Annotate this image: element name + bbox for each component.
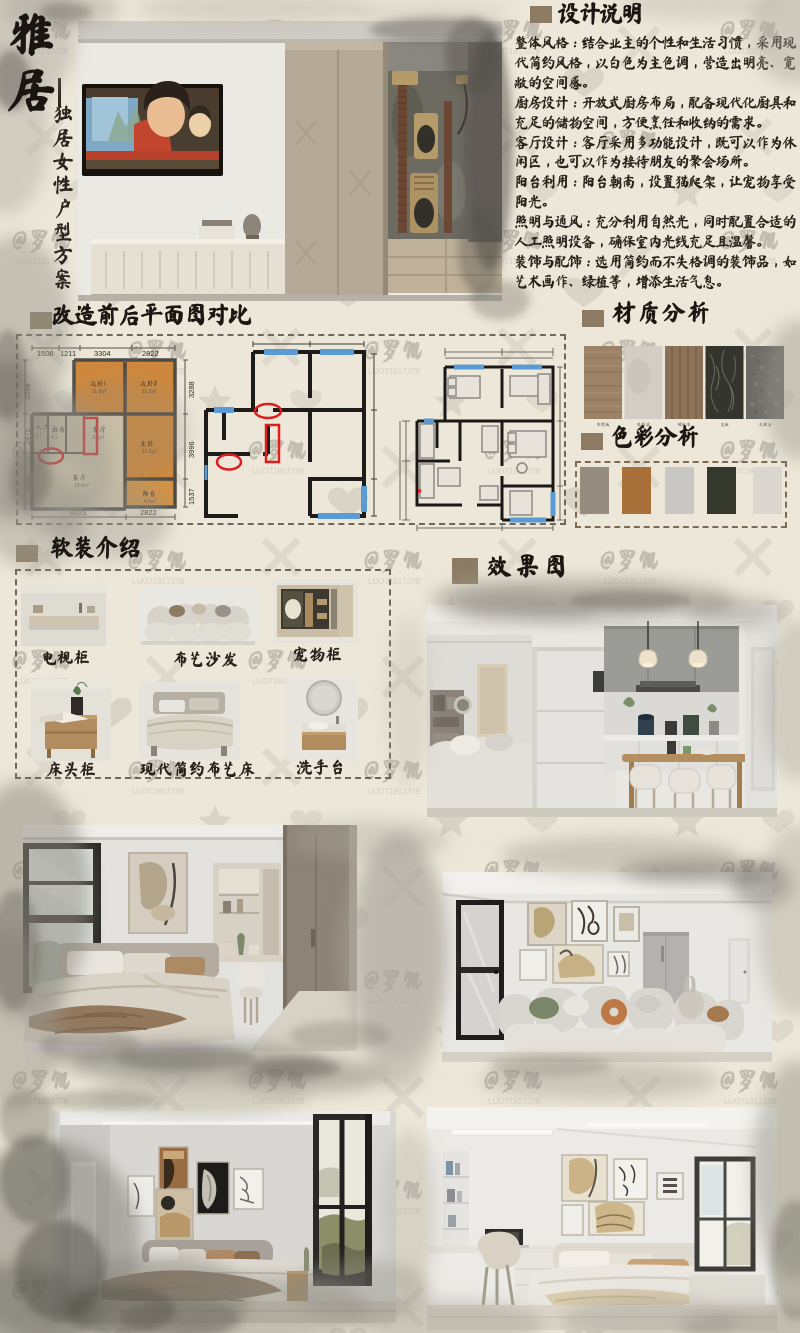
svg-text:1211: 1211 xyxy=(60,349,76,358)
svg-text:2.7: 2.7 xyxy=(35,433,42,439)
svg-text:18.9㎡: 18.9㎡ xyxy=(74,482,89,489)
svg-text:2475: 2475 xyxy=(23,428,32,445)
svg-text:4.6㎡: 4.6㎡ xyxy=(144,498,156,505)
svg-text:6021: 6021 xyxy=(70,508,87,517)
svg-text:岩板: 岩板 xyxy=(720,421,729,427)
svg-text:3304: 3304 xyxy=(94,349,111,358)
svg-text:大理石: 大理石 xyxy=(758,422,772,427)
svg-text:11.3㎡: 11.3㎡ xyxy=(142,388,156,395)
svg-text:11.6㎡: 11.6㎡ xyxy=(92,388,106,395)
svg-text:厨房: 厨房 xyxy=(51,426,65,434)
svg-text:客厅: 客厅 xyxy=(72,473,86,481)
svg-text:3060: 3060 xyxy=(23,475,32,492)
svg-text:4.1: 4.1 xyxy=(51,435,58,441)
svg-text:餐厅: 餐厅 xyxy=(92,425,106,433)
svg-text:次卧2: 次卧2 xyxy=(140,379,157,387)
svg-text:主卧: 主卧 xyxy=(140,440,154,447)
svg-text:阳台: 阳台 xyxy=(142,490,156,497)
svg-text:2822: 2822 xyxy=(140,508,157,517)
svg-text:3288: 3288 xyxy=(187,381,194,398)
svg-text:2822: 2822 xyxy=(142,349,159,358)
svg-text:1537: 1537 xyxy=(187,488,194,505)
svg-text:11.9㎡: 11.9㎡ xyxy=(142,448,156,455)
svg-text:木地板: 木地板 xyxy=(596,421,610,427)
svg-text:次卧1: 次卧1 xyxy=(90,379,106,387)
svg-text:3996: 3996 xyxy=(187,441,194,458)
svg-text:入户: 入户 xyxy=(35,424,49,431)
svg-text:3288: 3288 xyxy=(23,383,32,400)
svg-text:1506: 1506 xyxy=(37,349,54,358)
